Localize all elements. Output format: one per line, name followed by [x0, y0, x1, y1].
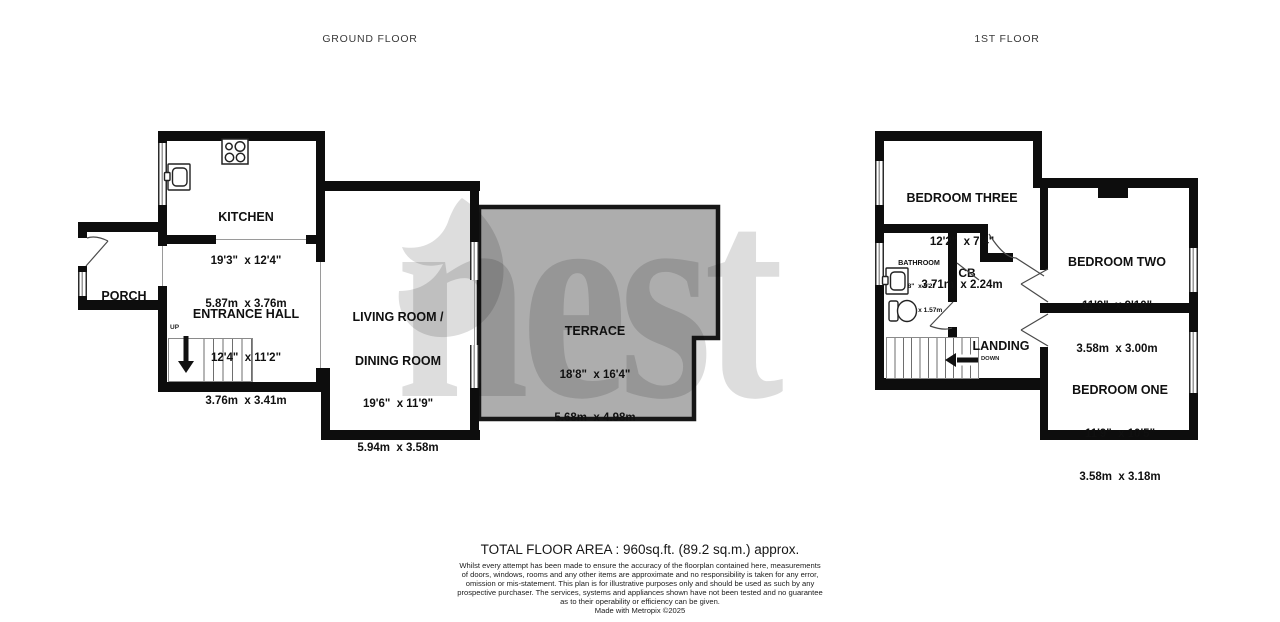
wall-segment: [875, 131, 884, 161]
room-label-entrance-hall: ENTRANCE HALL 12'4" x 11'2" 3.76m x 3.41…: [193, 278, 299, 438]
wall-segment: [78, 296, 87, 310]
staircase-down: [886, 337, 979, 379]
wall-segment: [1189, 292, 1198, 332]
disclaimer-line: omission or mis-statement. This plan is …: [0, 579, 1280, 588]
chimney-breast: [1098, 188, 1128, 198]
room-label-bedroom-one: BEDROOM ONE 11'9" x 10'5" 3.58m x 3.18m: [1072, 354, 1168, 514]
wall-segment: [306, 235, 325, 244]
window: [470, 345, 479, 388]
door-opening: [162, 246, 163, 286]
room-label-cupboard: CB: [958, 237, 976, 310]
wall-segment: [158, 131, 325, 141]
stairs-up-label: UP: [170, 324, 179, 331]
window: [875, 161, 884, 205]
wall-segment: [1040, 178, 1048, 270]
wall-segment: [1040, 303, 1048, 313]
wall-segment: [78, 222, 167, 232]
room-label-bathroom: BATHROOM 8'8" x 5'2" 2.64m x 1.57m: [896, 243, 943, 331]
disclaimer-line: prospective purchaser. The services, sys…: [0, 588, 1280, 597]
wall-segment: [875, 285, 884, 390]
wall-segment: [1040, 347, 1048, 440]
first-floor-title: 1ST FLOOR: [897, 33, 1117, 45]
stair-treads: [887, 338, 978, 378]
window: [158, 143, 167, 208]
wall-segment: [1033, 178, 1198, 188]
window: [470, 242, 479, 280]
glazed-opening: [474, 280, 475, 345]
total-floor-area: TOTAL FLOOR AREA : 960sq.ft. (89.2 sq.m.…: [0, 542, 1280, 557]
wall-segment: [470, 388, 479, 440]
room-label-terrace: TERRACE 18'8" x 16'4" 5.68m x 4.98m: [554, 295, 635, 455]
room-label-living-dining: LIVING ROOM / DINING ROOM 19'6" x 11'9" …: [353, 281, 444, 484]
wall-segment: [322, 181, 480, 191]
made-with-credit: Made with Metropix ©2025: [0, 606, 1280, 615]
disclaimer-line: as to their operability or efficiency ca…: [0, 597, 1280, 606]
window: [78, 272, 87, 297]
wall-segment: [470, 181, 479, 242]
floorplan-canvas: GROUND FLOOR 1ST FLOOR nest UP: [0, 0, 1280, 622]
disclaimer-line: Whilst every attempt has been made to en…: [0, 561, 1280, 570]
disclaimer-line: of doors, windows, rooms and any other i…: [0, 570, 1280, 579]
ground-floor-title: GROUND FLOOR: [260, 33, 480, 45]
window: [1189, 332, 1198, 393]
wall-segment: [1189, 178, 1198, 248]
wall-segment: [875, 131, 1042, 141]
window: [875, 243, 884, 285]
window: [1189, 248, 1198, 292]
wide-opening: [320, 262, 321, 368]
room-label-landing: LANDING: [973, 310, 1030, 383]
wall-segment: [78, 222, 87, 238]
room-label-porch: PORCH: [101, 260, 146, 333]
